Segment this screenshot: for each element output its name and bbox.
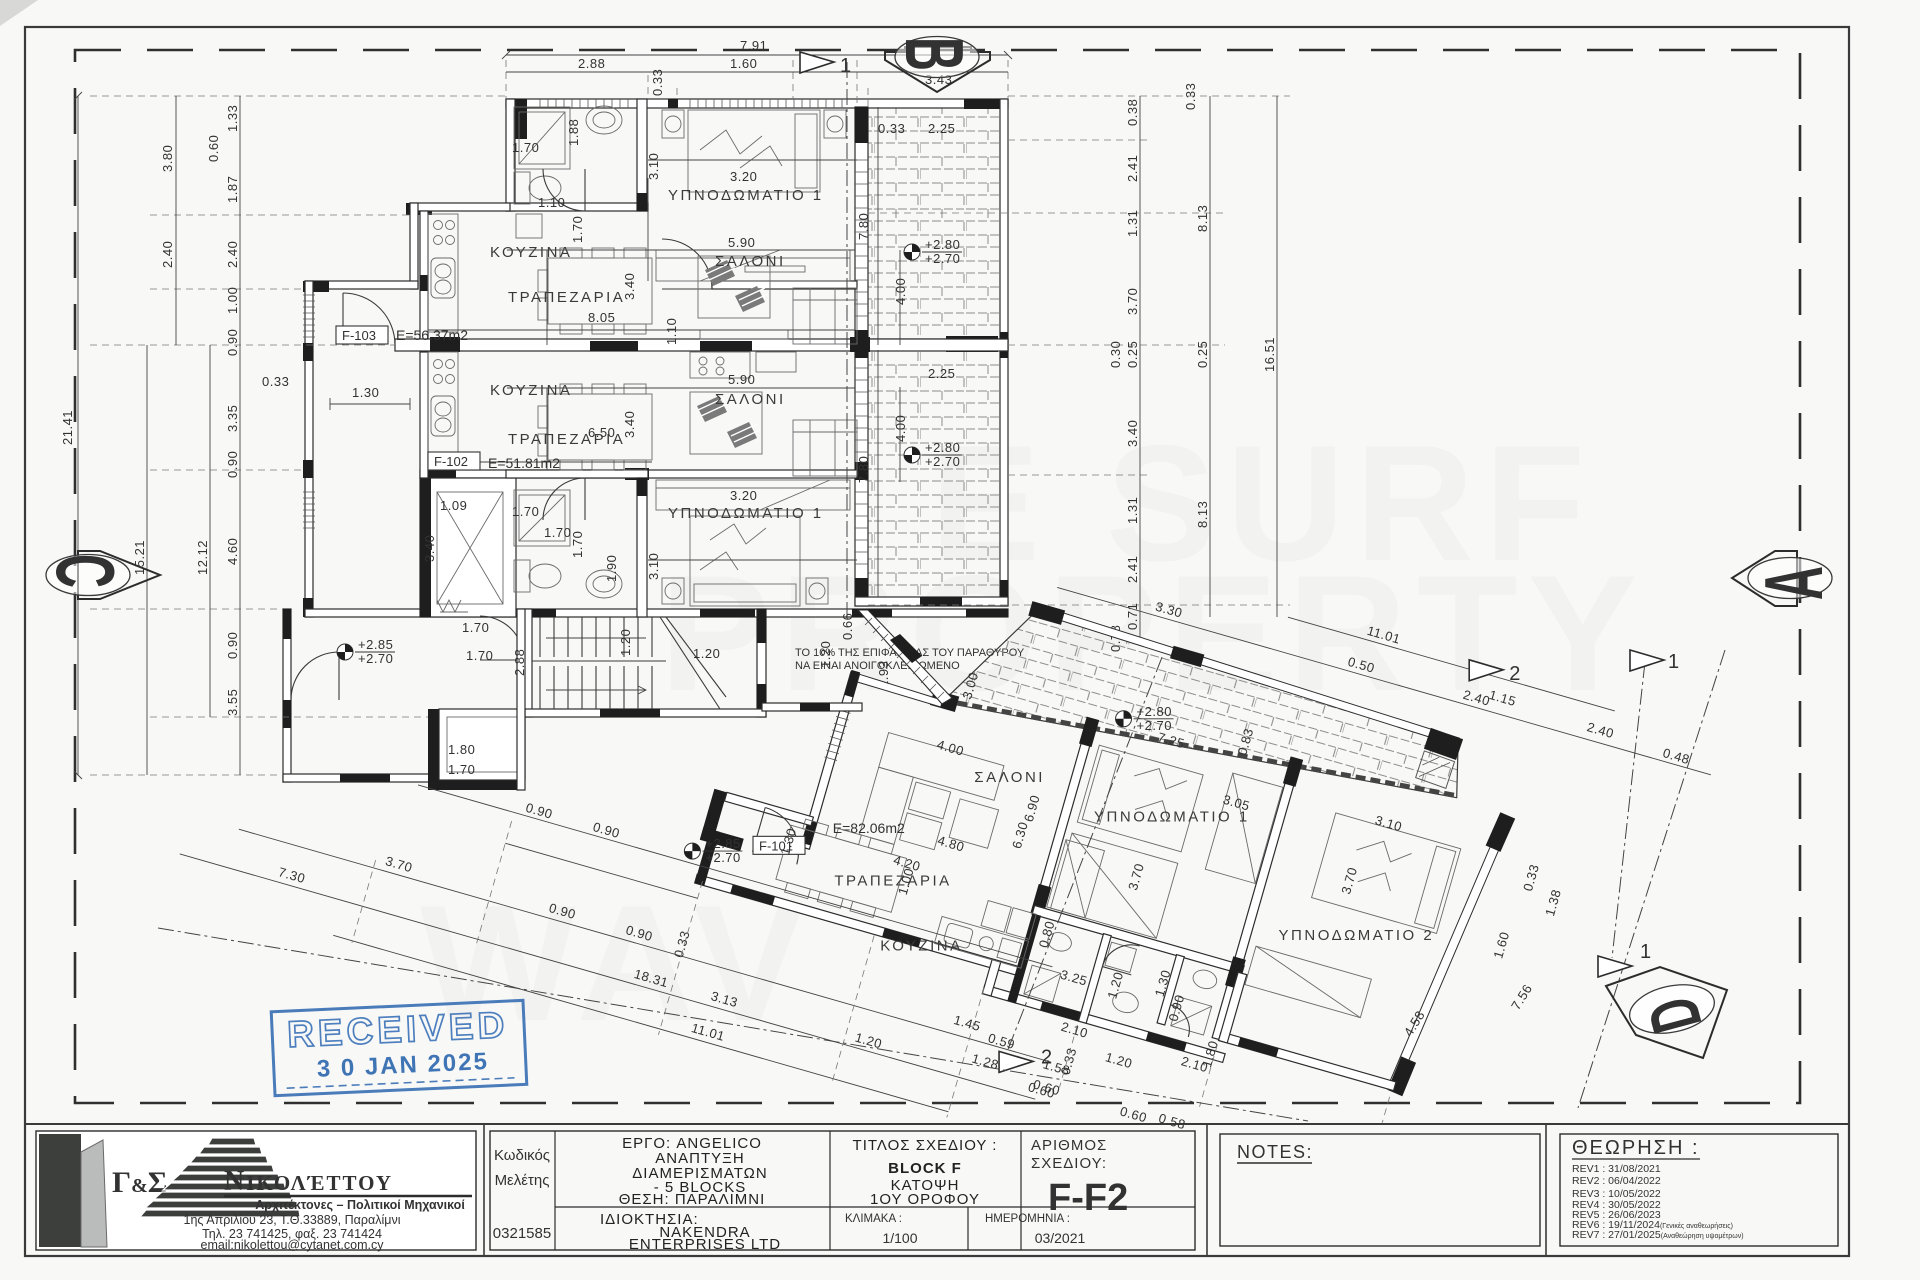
svg-text:0.71: 0.71 — [1125, 603, 1140, 630]
svg-text:2.88: 2.88 — [512, 649, 527, 676]
svg-text:1.80: 1.80 — [448, 742, 475, 757]
svg-text:REV2 : 06/04/2022: REV2 : 06/04/2022 — [1572, 1175, 1661, 1187]
svg-text:3.40: 3.40 — [422, 535, 437, 562]
svg-text:3.40: 3.40 — [622, 411, 637, 438]
svg-text:3.20: 3.20 — [730, 169, 757, 184]
svg-text:F-103: F-103 — [342, 328, 376, 343]
svg-text:2.41: 2.41 — [1125, 556, 1140, 583]
svg-text:8.13: 8.13 — [1195, 205, 1210, 232]
svg-text:ΥΠΝΟΔΩΜΑΤΙΟ 1: ΥΠΝΟΔΩΜΑΤΙΟ 1 — [668, 505, 824, 522]
svg-text:ΣΑΛΟΝΙ: ΣΑΛΟΝΙ — [715, 253, 786, 270]
svg-text:+2.80: +2.80 — [1137, 704, 1172, 719]
svg-text:1.60: 1.60 — [730, 56, 757, 71]
svg-text:0.30: 0.30 — [1108, 341, 1123, 368]
svg-text:ΚΟΥΖΙΝΑ: ΚΟΥΖΙΝΑ — [490, 244, 572, 261]
svg-text:0.66: 0.66 — [840, 613, 855, 640]
svg-text:A: A — [1748, 566, 1840, 600]
svg-text:2: 2 — [1509, 663, 1520, 685]
svg-text:ΚΛΙΜΑΚΑ :: ΚΛΙΜΑΚΑ : — [845, 1213, 902, 1225]
svg-text:1.10: 1.10 — [664, 318, 679, 345]
svg-text:3.55: 3.55 — [225, 689, 240, 716]
svg-text:7.80: 7.80 — [856, 213, 871, 240]
svg-text:2.41: 2.41 — [1125, 155, 1140, 182]
svg-text:1.20: 1.20 — [618, 629, 633, 656]
svg-text:2.25: 2.25 — [928, 121, 955, 136]
svg-text:ΝΙΚΟΛΈΤΤΟΥ: ΝΙΚΟΛΈΤΤΟΥ — [224, 1166, 393, 1197]
svg-text:7.80: 7.80 — [856, 456, 871, 483]
svg-text:ΑΡΙΘΜΟΣ: ΑΡΙΘΜΟΣ — [1031, 1137, 1107, 1154]
svg-text:F-F2: F-F2 — [1048, 1177, 1128, 1219]
svg-text:0.90: 0.90 — [225, 329, 240, 356]
svg-text:2.40: 2.40 — [160, 241, 175, 268]
svg-text:ΝΑ ΕΙΝΑΙ ΑΝΟΙΓΟΚΛΕΙΝΩΜΕΝΟ: ΝΑ ΕΙΝΑΙ ΑΝΟΙΓΟΚΛΕΙΝΩΜΕΝΟ — [795, 660, 960, 672]
svg-text:3.70: 3.70 — [1125, 288, 1140, 315]
svg-text:1.33: 1.33 — [225, 105, 240, 132]
svg-text:1.10: 1.10 — [538, 195, 565, 210]
svg-text:3.20: 3.20 — [730, 488, 757, 503]
svg-text:ΚΟΥΖΙΝΑ: ΚΟΥΖΙΝΑ — [880, 938, 962, 955]
svg-text:16.51: 16.51 — [1262, 337, 1277, 372]
svg-text:0321585: 0321585 — [493, 1225, 551, 1242]
svg-text:ENTERPRISES LTD: ENTERPRISES LTD — [629, 1236, 781, 1253]
svg-text:Μελέτης: Μελέτης — [495, 1172, 550, 1189]
svg-text:0.33: 0.33 — [1183, 83, 1198, 110]
svg-text:B: B — [888, 37, 980, 71]
svg-text:1/100: 1/100 — [882, 1230, 917, 1246]
svg-text:+2.80: +2.80 — [925, 440, 960, 455]
svg-text:ΚΟΥΖΙΝΑ: ΚΟΥΖΙΝΑ — [490, 382, 572, 399]
svg-text:12.12: 12.12 — [195, 540, 210, 575]
svg-text:Αρχιτέκτονες – Πολιτικοί Μηχαν: Αρχιτέκτονες – Πολιτικοί Μηχανικοί — [255, 1198, 465, 1212]
svg-text:2.40: 2.40 — [225, 241, 240, 268]
svg-text:+2.70: +2.70 — [358, 651, 393, 666]
svg-text:ΣΧΕΔΙΟΥ:: ΣΧΕΔΙΟΥ: — [1031, 1155, 1107, 1172]
svg-text:ΤΙΤΛΟΣ ΣΧΕΔΙΟΥ :: ΤΙΤΛΟΣ ΣΧΕΔΙΟΥ : — [853, 1137, 998, 1154]
svg-text:ΘΕΣΗ: ΠΑΡΑΛΙΜΝΙ: ΘΕΣΗ: ΠΑΡΑΛΙΜΝΙ — [619, 1191, 766, 1208]
svg-text:4.00: 4.00 — [893, 278, 908, 305]
svg-text:1ης Απριλίου 23, Τ.Θ.33889, Πα: 1ης Απριλίου 23, Τ.Θ.33889, Παραλίμνι — [184, 1213, 401, 1227]
svg-text:2.25: 2.25 — [928, 366, 955, 381]
svg-text:+2.85: +2.85 — [358, 637, 393, 652]
svg-text:2: 2 — [1041, 1046, 1052, 1068]
svg-text:1.31: 1.31 — [1125, 497, 1140, 524]
svg-text:03/2021: 03/2021 — [1035, 1230, 1086, 1246]
svg-text:0.60: 0.60 — [206, 135, 221, 162]
svg-text:1.70: 1.70 — [448, 762, 475, 777]
svg-text:4.60: 4.60 — [225, 538, 240, 565]
svg-text:2.88: 2.88 — [578, 56, 605, 71]
svg-text:F-102: F-102 — [434, 454, 468, 469]
svg-text:1ΟΥ ΟΡΟΦΟΥ: 1ΟΥ ΟΡΟΦΟΥ — [870, 1191, 980, 1208]
svg-text:5.90: 5.90 — [728, 235, 755, 250]
svg-text:email:nikolettou@cytanet.com.c: email:nikolettou@cytanet.com.cy — [201, 1238, 385, 1252]
svg-text:E=56.37m2: E=56.37m2 — [396, 327, 468, 343]
svg-text:8.05: 8.05 — [588, 310, 615, 325]
svg-text:ΥΠΝΟΔΩΜΑΤΙΟ 1: ΥΠΝΟΔΩΜΑΤΙΟ 1 — [668, 187, 824, 204]
svg-text:+2.85: +2.85 — [705, 836, 740, 851]
svg-text:E=82.06m2: E=82.06m2 — [833, 820, 905, 836]
svg-text:+2.80: +2.80 — [925, 237, 960, 252]
svg-text:ΤΡΑΠΕΖΑΡΙΑ: ΤΡΑΠΕΖΑΡΙΑ — [508, 289, 625, 306]
svg-text:E=51.81m2: E=51.81m2 — [488, 455, 560, 471]
svg-text:0.25: 0.25 — [1125, 341, 1140, 368]
svg-text:1: 1 — [840, 55, 851, 77]
svg-text:ΣΑΛΟΝΙ: ΣΑΛΟΝΙ — [974, 769, 1045, 786]
svg-text:3.40: 3.40 — [1125, 420, 1140, 447]
svg-text:4.00: 4.00 — [893, 415, 908, 442]
svg-text:ΥΠΝΟΔΩΜΑΤΙΟ 2: ΥΠΝΟΔΩΜΑΤΙΟ 2 — [1279, 927, 1435, 944]
svg-text:BLOCK F: BLOCK F — [888, 1160, 962, 1177]
svg-text:+2.70: +2.70 — [705, 850, 740, 865]
svg-text:1.70: 1.70 — [512, 504, 539, 519]
svg-text:C: C — [39, 554, 131, 588]
svg-text:ΤΡΑΠΕΖΑΡΙΑ: ΤΡΑΠΕΖΑΡΙΑ — [834, 873, 951, 890]
svg-text:1.20: 1.20 — [693, 646, 720, 661]
svg-text:1.70: 1.70 — [570, 216, 585, 243]
svg-text:0.38: 0.38 — [1125, 99, 1140, 126]
svg-text:3.10: 3.10 — [646, 153, 661, 180]
svg-text:1.70: 1.70 — [544, 525, 571, 540]
svg-text:1.87: 1.87 — [225, 176, 240, 203]
svg-text:0.33: 0.33 — [262, 374, 289, 389]
svg-text:21.41: 21.41 — [60, 410, 75, 445]
svg-text:ΘΕΩΡΗΣΗ :: ΘΕΩΡΗΣΗ : — [1572, 1137, 1700, 1159]
svg-text:3.40: 3.40 — [622, 273, 637, 300]
svg-text:+2.70: +2.70 — [925, 251, 960, 266]
svg-text:0.33: 0.33 — [650, 69, 665, 96]
svg-text:0.90: 0.90 — [225, 451, 240, 478]
svg-text:1.70: 1.70 — [570, 531, 585, 558]
svg-text:6.50: 6.50 — [588, 425, 615, 440]
svg-text:NOTES:: NOTES: — [1237, 1142, 1313, 1162]
svg-text:7.91: 7.91 — [740, 38, 767, 53]
svg-text:1.70: 1.70 — [462, 620, 489, 635]
svg-text:1.00: 1.00 — [225, 287, 240, 314]
svg-text:REV1 : 31/08/2021: REV1 : 31/08/2021 — [1572, 1163, 1661, 1175]
svg-text:1: 1 — [1668, 651, 1679, 673]
svg-text:3.10: 3.10 — [646, 553, 661, 580]
svg-text:1.90: 1.90 — [604, 555, 619, 582]
svg-text:1.70: 1.70 — [466, 648, 493, 663]
svg-text:0.25: 0.25 — [1195, 341, 1210, 368]
svg-text:3.80: 3.80 — [160, 145, 175, 172]
svg-text:Κωδικός: Κωδικός — [494, 1147, 550, 1164]
svg-text:8.13: 8.13 — [1195, 501, 1210, 528]
svg-text:ΣΑΛΟΝΙ: ΣΑΛΟΝΙ — [715, 391, 786, 408]
svg-text:0.33: 0.33 — [878, 121, 905, 136]
svg-text:3.35: 3.35 — [225, 405, 240, 432]
svg-text:1.88: 1.88 — [566, 119, 581, 146]
svg-text:1.09: 1.09 — [440, 498, 467, 513]
svg-text:1.70: 1.70 — [512, 140, 539, 155]
svg-text:0.90: 0.90 — [225, 632, 240, 659]
svg-text:5.90: 5.90 — [728, 372, 755, 387]
svg-text:1: 1 — [1640, 941, 1651, 963]
svg-text:1.31: 1.31 — [1125, 210, 1140, 237]
svg-text:+2.70: +2.70 — [925, 454, 960, 469]
svg-text:ΥΠΝΟΔΩΜΑΤΙΟ 1: ΥΠΝΟΔΩΜΑΤΙΟ 1 — [1094, 809, 1250, 826]
svg-text:1.30: 1.30 — [352, 385, 379, 400]
